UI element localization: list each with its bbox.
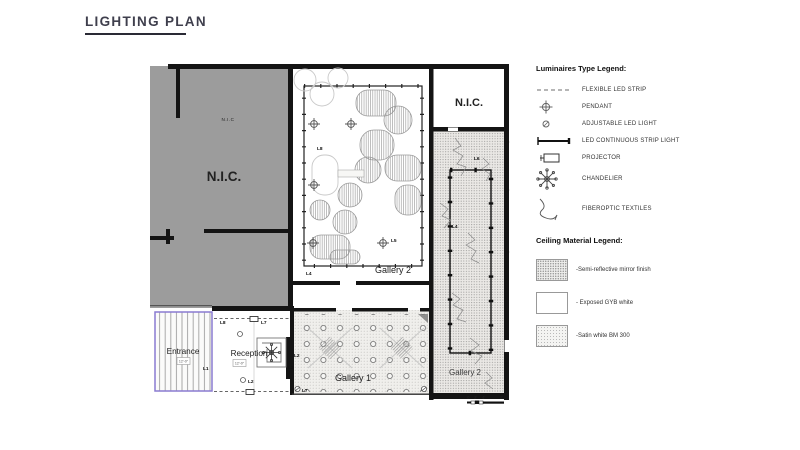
legend-item-led-strip-light: LED CONTINUOUS STRIP LIGHT: [536, 134, 766, 147]
ceiling-item-label: - Exposed GYB white: [576, 300, 633, 306]
adjustable-led-icon: [536, 118, 576, 130]
gallery1-label: Gallery 1: [335, 373, 371, 383]
mirror-finish-swatch: [536, 259, 568, 281]
nic-small-label: N.I.C: [222, 117, 235, 122]
svg-text:L6: L6: [474, 156, 480, 162]
chandelier-icon: [536, 168, 576, 190]
ceiling-legend-title: Ceiling Material Legend:: [536, 236, 766, 245]
legend-item-flexible-led-strip: FLEXIBLE LED STRIP: [536, 83, 766, 96]
legend-item-label: LED CONTINUOUS STRIP LIGHT: [576, 138, 679, 144]
ceiling-material-legend: Ceiling Material Legend: -Semi-reflectiv…: [536, 236, 766, 358]
legend-item-label: FIBEROPTIC TEXTILES: [576, 206, 652, 212]
svg-text:8': 8': [500, 395, 504, 400]
legend-item-label: CHANDELIER: [576, 176, 623, 182]
legend-item-adjustable-led: ADJUSTABLE LED LIGHT: [536, 117, 766, 130]
svg-text:L8: L8: [220, 320, 226, 326]
svg-text:2': 2': [474, 395, 478, 400]
svg-text:L8: L8: [317, 146, 323, 152]
legend-item-label: PROJECTOR: [576, 155, 621, 161]
legend-item-label: PENDANT: [576, 104, 612, 110]
legend-item-label: ADJUSTABLE LED LIGHT: [576, 121, 657, 127]
svg-text:L4: L4: [452, 224, 458, 230]
room-nic-left: [150, 66, 290, 308]
svg-text:L2: L2: [248, 379, 254, 385]
legend-item-chandelier: CHANDELIER: [536, 168, 766, 190]
ceiling-item-mirror-finish: -Semi-reflective mirror finish: [536, 259, 766, 281]
projector-icon: [536, 151, 576, 165]
nic-large-label: N.I.C.: [207, 169, 242, 184]
ceiling-item-satin-white: -Satin white BM 300: [536, 325, 766, 347]
led-strip-light-icon: [536, 135, 576, 147]
lighting-plan-page: LIGHTING PLAN: [0, 0, 800, 450]
satin-white-swatch: [536, 325, 568, 347]
gallery2-side-label: Gallery 2: [449, 368, 482, 377]
reception-height-tag: 12'-0": [235, 362, 245, 366]
gallery2-main-label: Gallery 2: [375, 265, 411, 275]
svg-text:L5: L5: [391, 238, 397, 244]
svg-text:L7: L7: [302, 388, 308, 394]
entrance-label: Entrance: [167, 347, 200, 356]
exposed-gyb-swatch: [536, 292, 568, 314]
svg-text:L7: L7: [261, 320, 267, 326]
luminaires-legend: Luminaires Type Legend: FLEXIBLE LED STR…: [536, 64, 766, 224]
legend-item-label: FLEXIBLE LED STRIP: [576, 87, 646, 93]
callout-box: [338, 170, 364, 177]
entrance-height-tag: 12'-0": [179, 360, 189, 364]
luminaires-legend-title: Luminaires Type Legend:: [536, 64, 766, 73]
legend-item-projector: PROJECTOR: [536, 151, 766, 164]
flexible-led-strip-icon: [536, 85, 576, 95]
svg-text:4': 4': [482, 395, 486, 400]
svg-text:L4: L4: [306, 271, 312, 277]
legend-item-pendant: PENDANT: [536, 100, 766, 113]
nic-top-label: N.I.C.: [455, 97, 483, 109]
pendant-icon: [536, 100, 576, 114]
reception-label: Reception: [231, 349, 268, 358]
ceiling-item-label: -Semi-reflective mirror finish: [576, 267, 651, 273]
svg-text:L3: L3: [288, 365, 294, 371]
ceiling-item-label: -Satin white BM 300: [576, 333, 630, 339]
legend-item-fiberoptic: FIBEROPTIC TEXTILES: [536, 198, 766, 220]
fiberoptic-icon: [536, 196, 576, 222]
ceiling-item-exposed-gyb: - Exposed GYB white: [536, 292, 766, 314]
svg-text:L2: L2: [294, 353, 300, 359]
svg-text:L1: L1: [203, 366, 209, 372]
